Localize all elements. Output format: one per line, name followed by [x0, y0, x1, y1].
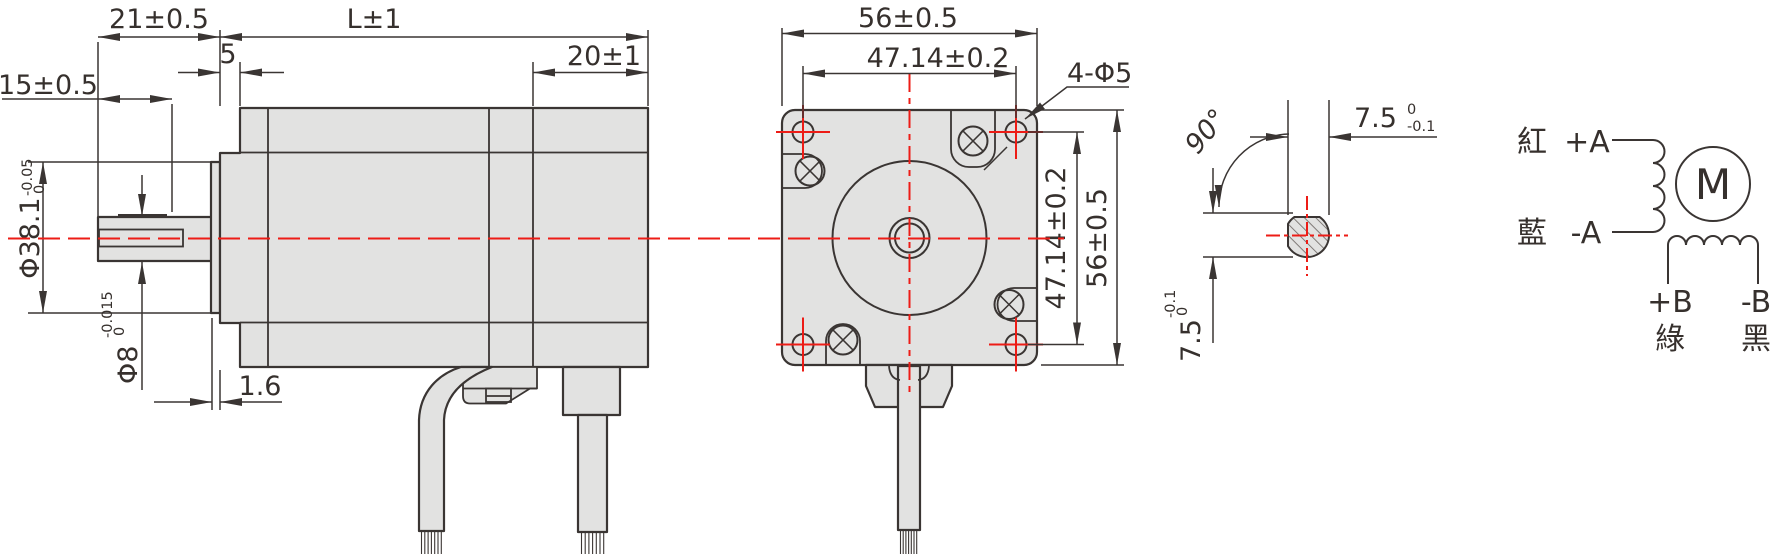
terminal-plus-a: +A	[1564, 125, 1610, 160]
dim-flat-width: 7.5	[1354, 103, 1397, 134]
dim-face-height: 56±0.5	[1082, 188, 1113, 288]
dim-hole-callout: 4-Φ5	[1067, 58, 1132, 89]
coil-phase-b	[1668, 236, 1758, 245]
motor-drawing-svg: 21±0.5 L±1 5 20±1 15±0.5 Φ38.1 0 -0.05 Φ…	[0, 0, 1772, 555]
dim-shaft-length: 21±0.5	[109, 4, 209, 35]
front-view: 56±0.5 47.14±0.2 4-Φ5 47.14±0.2 56±0.5	[776, 3, 1132, 554]
terminal-minus-a: -A	[1571, 216, 1602, 251]
side-view: 21±0.5 L±1 5 20±1 15±0.5 Φ38.1 0 -0.05 Φ…	[0, 4, 648, 554]
shaft-section-view: 7.5 0 -0.1 7.5 0 -0.1 90°	[1163, 100, 1437, 362]
dim-shaft-diameter-tol-lower: -0.015	[100, 291, 116, 338]
dim-hole-spacing-h: 47.14±0.2	[867, 43, 1010, 74]
wiring-diagram: 紅 +A 藍 -A M +B -B 綠 黑	[1517, 125, 1771, 357]
dim-flat-width-tol-lower: -0.1	[1407, 119, 1435, 135]
dim-flange-thickness: 1.6	[239, 371, 282, 402]
dim-flat-length: 15±0.5	[0, 70, 98, 101]
dim-flat-height: 7.5	[1176, 319, 1207, 362]
dim-body-length: L±1	[347, 4, 402, 35]
lead-color-red: 紅	[1517, 125, 1547, 160]
dim-flat-width-tol-upper: 0	[1407, 102, 1416, 118]
cable-right-strands	[582, 532, 604, 554]
cable-right-block	[563, 367, 620, 415]
cable-front-strands	[901, 531, 917, 554]
lead-color-green: 綠	[1655, 322, 1685, 357]
dim-pilot-diameter-tol-lower: -0.05	[20, 158, 36, 196]
dim-flat-angle: 90°	[1179, 103, 1234, 160]
dim-pilot-step: 5	[219, 39, 236, 70]
dim-face-width: 56±0.5	[858, 3, 958, 34]
dim-flat-height-tol-lower: -0.1	[1163, 290, 1179, 318]
cable-right	[578, 415, 607, 532]
cable-left-strands	[422, 531, 442, 554]
coil-phase-a	[1653, 140, 1665, 232]
lead-color-blue: 藍	[1517, 216, 1547, 251]
motor-symbol: M	[1695, 160, 1731, 209]
shaft-cross-section	[1288, 217, 1329, 257]
drawing-canvas: 21±0.5 L±1 5 20±1 15±0.5 Φ38.1 0 -0.05 Φ…	[0, 0, 1772, 555]
terminal-plus-b: +B	[1647, 285, 1693, 320]
angle-arc	[1219, 134, 1289, 207]
dim-rear-cap-length: 20±1	[567, 41, 641, 72]
dim-shaft-diameter: Φ8	[113, 346, 144, 384]
terminal-minus-b: -B	[1741, 285, 1771, 320]
lead-color-black: 黑	[1741, 322, 1771, 357]
